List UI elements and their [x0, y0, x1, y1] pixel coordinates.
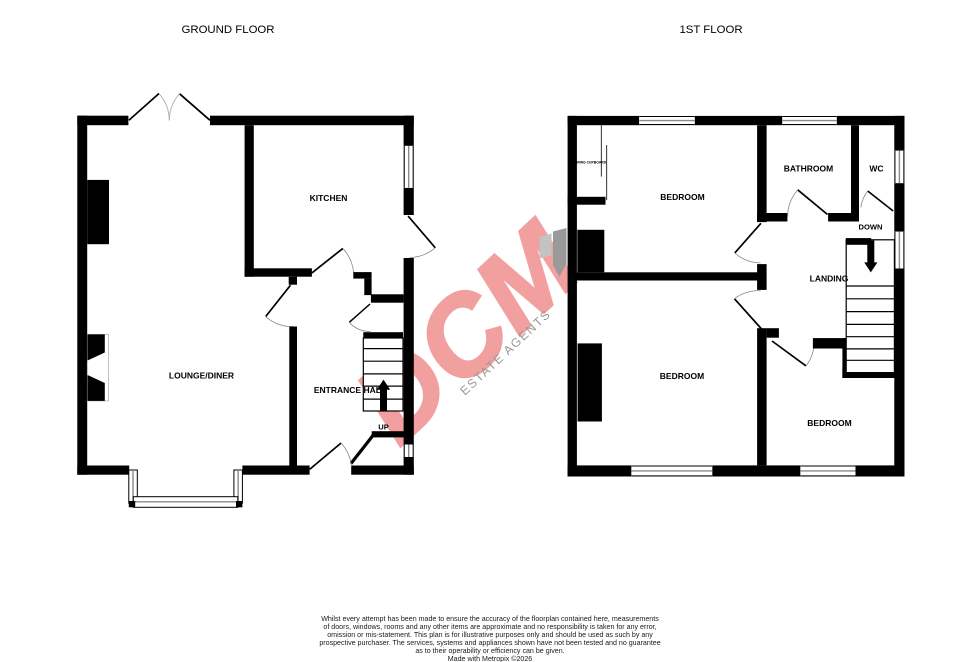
svg-text:KITCHEN: KITCHEN: [310, 193, 348, 203]
svg-text:Whilst every attempt has been: Whilst every attempt has been made to en…: [321, 615, 659, 623]
svg-text:LOUNGE/DINER: LOUNGE/DINER: [169, 371, 234, 381]
svg-text:BEDROOM: BEDROOM: [660, 371, 704, 381]
svg-text:WC: WC: [869, 164, 883, 174]
svg-text:BEDROOM: BEDROOM: [660, 192, 704, 202]
svg-text:LANDING: LANDING: [810, 274, 849, 284]
svg-text:ENTRANCE HALL: ENTRANCE HALL: [314, 385, 386, 395]
svg-text:AIRING CUPBOARD: AIRING CUPBOARD: [574, 161, 607, 165]
svg-text:of doors, windows, rooms and a: of doors, windows, rooms and any other i…: [323, 623, 656, 631]
svg-text:as to their operability or eff: as to their operability or efficiency ca…: [415, 647, 564, 655]
svg-text:UP: UP: [378, 423, 389, 432]
svg-text:BATHROOM: BATHROOM: [784, 164, 833, 174]
svg-text:GROUND FLOOR: GROUND FLOOR: [181, 24, 274, 36]
svg-text:1ST FLOOR: 1ST FLOOR: [679, 24, 742, 36]
svg-text:BEDROOM: BEDROOM: [807, 418, 851, 428]
svg-text:DOWN: DOWN: [858, 223, 882, 232]
svg-text:Made with Metropix ©2026: Made with Metropix ©2026: [448, 655, 533, 662]
svg-text:prospective purchaser. The ser: prospective purchaser. The services, sys…: [319, 639, 660, 647]
svg-text:omission or mis-statement. Thi: omission or mis-statement. This plan is …: [327, 631, 653, 639]
